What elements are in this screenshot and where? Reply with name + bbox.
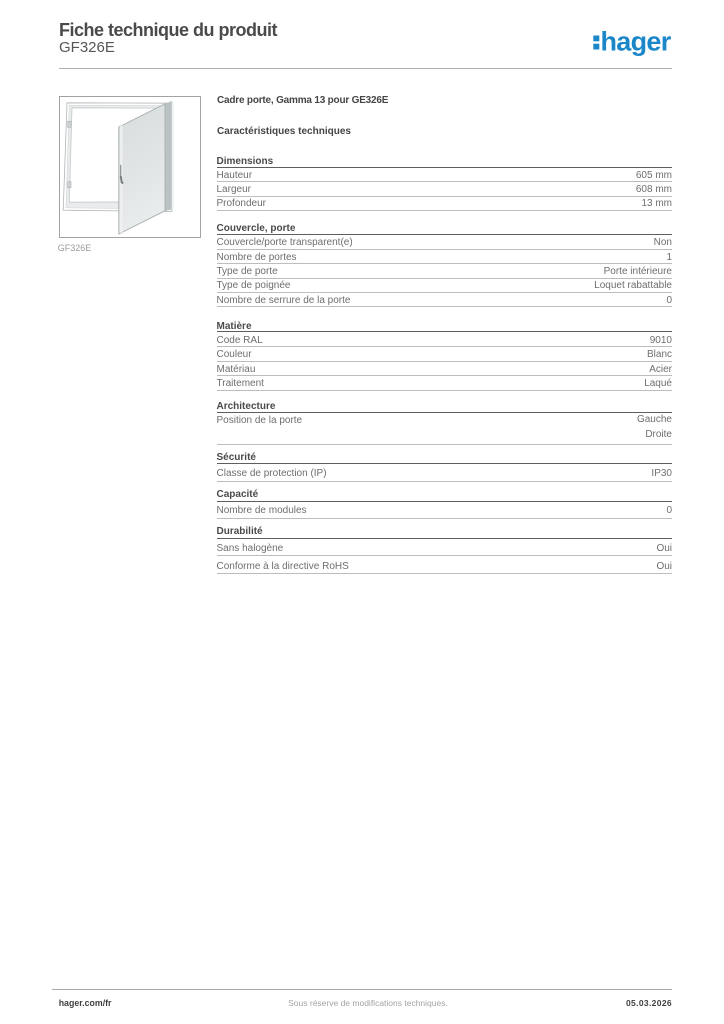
svg-text:hager: hager [601, 27, 672, 57]
